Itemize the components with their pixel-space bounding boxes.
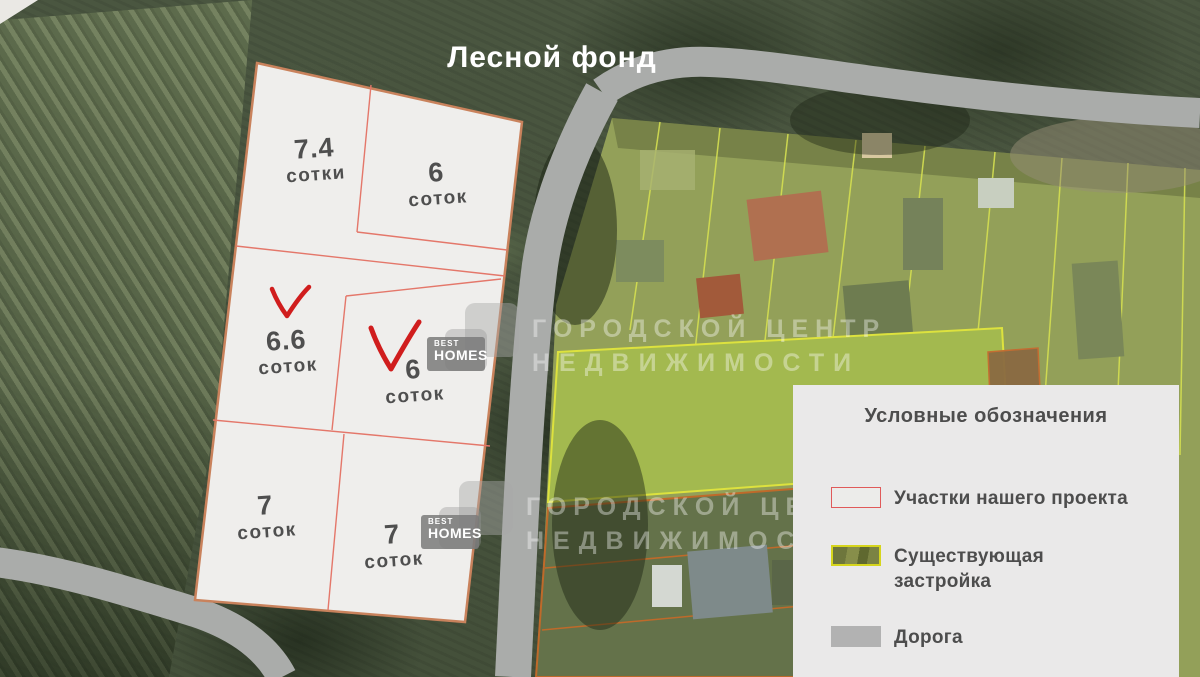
watermark-brand: BEST HOMES ГОРОДСКОЙ ЦЕНТР НЕДВИЖИМОСТИ (427, 303, 807, 383)
legend-panel: Условные обозначения Участки нашего прое… (793, 385, 1179, 677)
watermark-brand: BEST HOMES ГОРОДСКОЙ ЦЕНТР НЕДВИЖИМОСТИ (421, 481, 801, 561)
plot-area-unit: сотки (286, 164, 347, 188)
watermark-line2: НЕДВИЖИМОСТИ (532, 349, 886, 378)
best-homes-logo: BEST HOMES (421, 515, 479, 549)
plot-area-value: 7 (362, 518, 423, 550)
plot-area-unit: соток (237, 521, 298, 545)
plot-scheme-map: Лесной фонд 7.4 сотки 6 соток 6.6 соток … (0, 0, 1200, 677)
legend-item-label: Участки нашего проекта (894, 486, 1128, 512)
existing-buildings-swatch (831, 545, 881, 566)
plot-label-7.4: 7.4 сотки (283, 132, 346, 187)
map-corner-sliver (0, 0, 38, 24)
plot-label-7-right: 7 соток (362, 518, 425, 573)
plot-area-value: 6.6 (256, 324, 317, 356)
plot-label-6-top: 6 соток (406, 156, 469, 211)
legend-items: Участки нашего проекта Существующая заст… (831, 486, 1179, 651)
plot-label-7-left: 7 соток (235, 489, 298, 544)
legend-item-road: Дорога (831, 625, 1179, 651)
map-title: Лесной фонд (447, 41, 657, 75)
legend-item-project-plots: Участки нашего проекта (831, 486, 1179, 512)
legend-item-existing-buildings: Существующая застройка (831, 544, 1179, 595)
plot-area-value: 6 (406, 156, 467, 188)
brand-bottom-text: HOMES (434, 348, 485, 363)
plot-area-value: 7.4 (283, 132, 345, 164)
best-homes-logo: BEST HOMES (427, 337, 485, 371)
watermark-text: ГОРОДСКОЙ ЦЕНТР НЕДВИЖИМОСТИ (532, 315, 886, 378)
watermark-line1: ГОРОДСКОЙ ЦЕНТР (532, 315, 886, 344)
road-swatch (831, 626, 881, 647)
plot-area-unit: соток (364, 550, 425, 574)
plot-area-unit: соток (385, 385, 446, 409)
legend-item-label: Существующая застройка (894, 544, 1059, 595)
legend-item-label: Дорога (894, 625, 963, 651)
plot-label-6.6: 6.6 соток (256, 324, 319, 379)
plot-area-value: 7 (235, 489, 296, 521)
plot-area-unit: соток (258, 356, 319, 380)
plot-area-unit: соток (408, 188, 469, 212)
legend-title: Условные обозначения (793, 405, 1179, 428)
brand-bottom-text: HOMES (428, 526, 479, 541)
project-plots-swatch (831, 487, 881, 508)
